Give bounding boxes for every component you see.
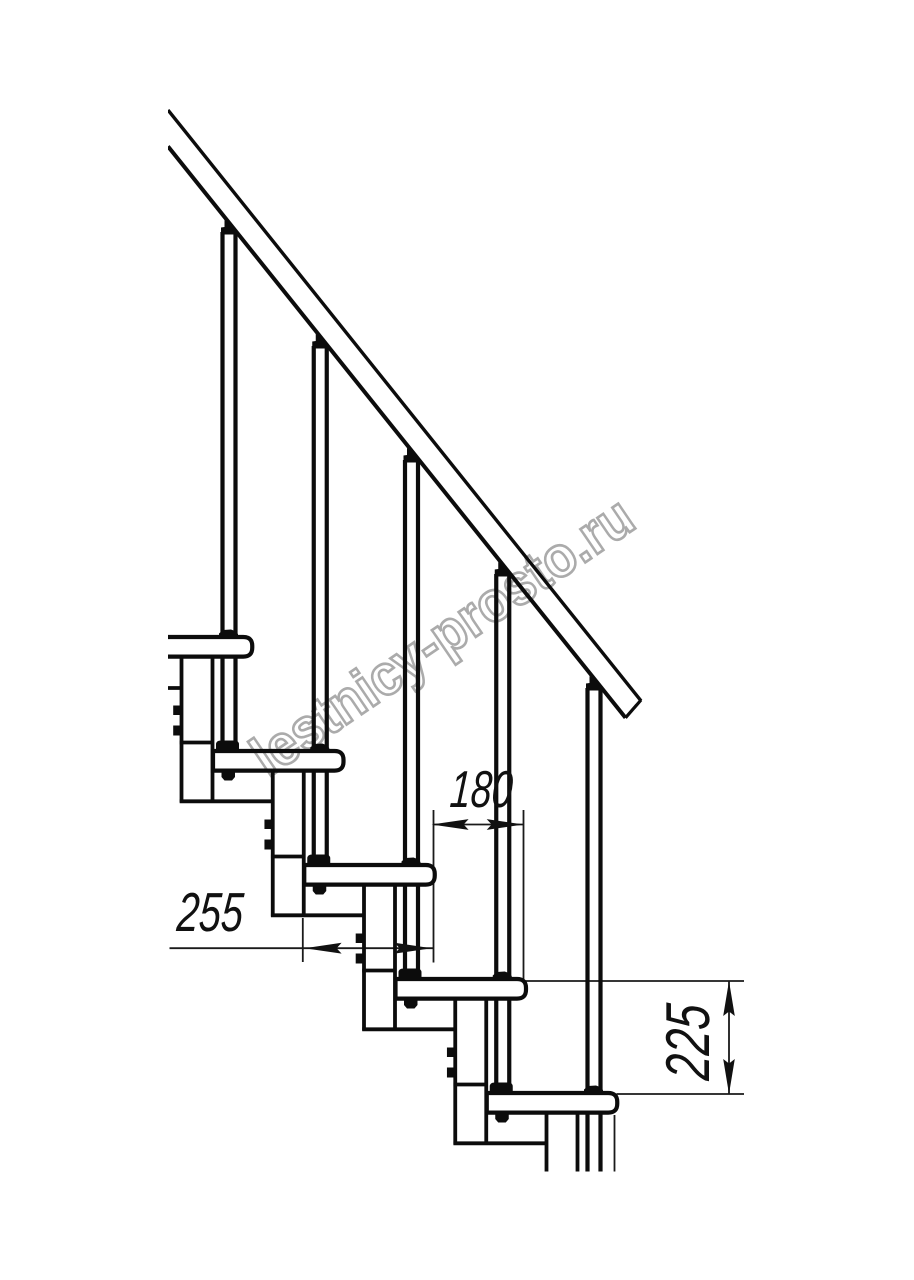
svg-text:180: 180	[448, 760, 515, 818]
svg-text:255: 255	[174, 883, 245, 944]
svg-text:225: 225	[653, 1001, 723, 1083]
